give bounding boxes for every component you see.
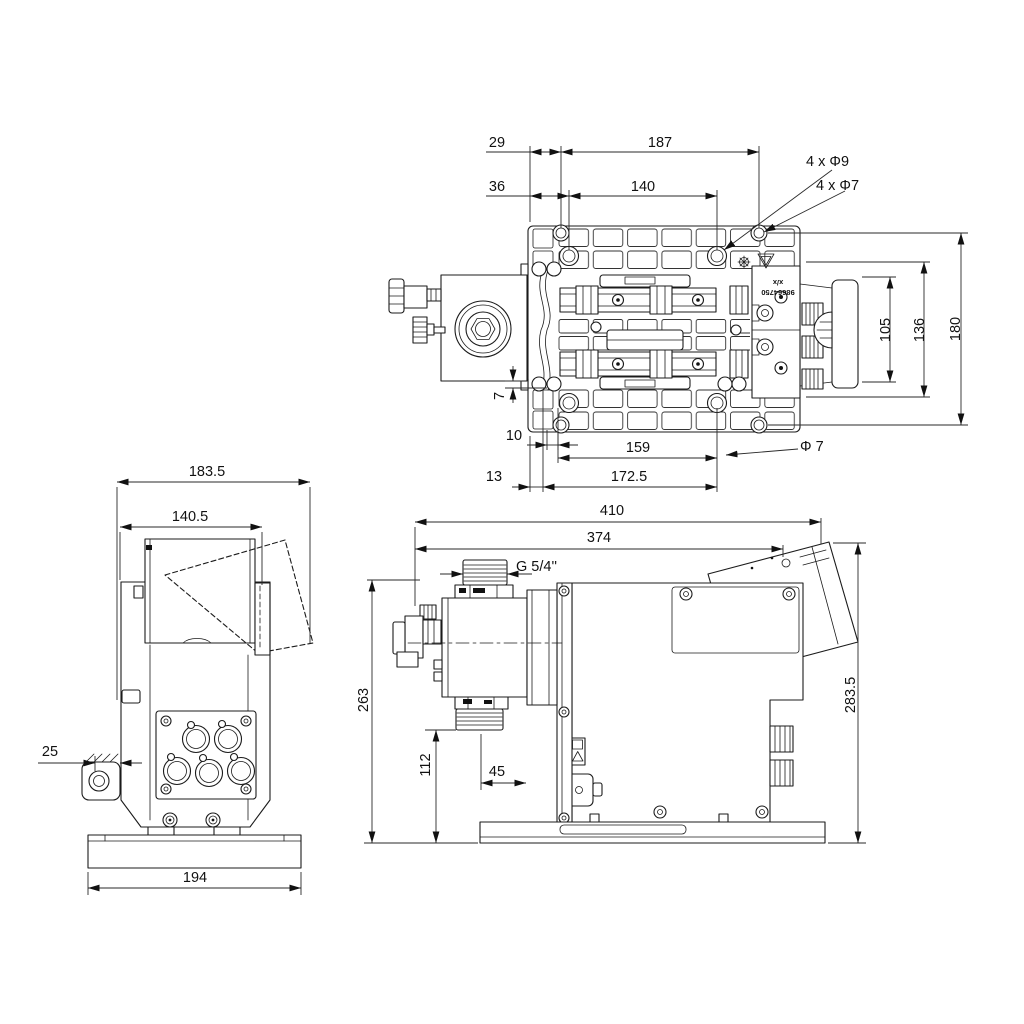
mounting-plate: 98664750 x/x xyxy=(521,225,800,433)
side-view: 410 374 G 5/4'' 263 283.5 112 45 xyxy=(356,503,866,843)
dim-183-5-label: 183.5 xyxy=(189,464,225,480)
dim-283-5-label: 283.5 xyxy=(843,677,859,713)
part-number-text: 98664750 xyxy=(761,288,794,297)
pump-head-top xyxy=(389,275,527,381)
connector-box: 98664750 x/x xyxy=(752,266,800,398)
dim-36-label: 36 xyxy=(489,179,505,195)
thread-size-label: G 5/4'' xyxy=(516,559,557,575)
pump-dimension-drawing: 98664750 x/x xyxy=(0,0,1024,1024)
dim-136-label: 136 xyxy=(912,318,928,342)
dim-10-label: 10 xyxy=(506,428,522,444)
dim-180-label: 180 xyxy=(948,317,964,341)
gear-icon xyxy=(738,256,750,268)
knurled-knob-side xyxy=(770,760,793,786)
discharge-thread-bottom xyxy=(456,709,503,730)
dim-7-label: 7 xyxy=(492,392,508,400)
dim-187-label: 187 xyxy=(648,135,672,151)
connector-plate xyxy=(156,711,256,799)
dim-140-label: 140 xyxy=(631,179,655,195)
knurled-knob-side xyxy=(770,726,793,752)
part-variant-text: x/x xyxy=(772,278,783,287)
dim-140-5-label: 140.5 xyxy=(172,509,208,525)
adjust-knob-top xyxy=(413,317,445,343)
cable-gland-top xyxy=(389,279,441,313)
dim-112-label: 112 xyxy=(418,753,434,776)
knurled-knob xyxy=(802,369,823,389)
dim-45-label: 45 xyxy=(489,764,505,780)
hole-dia-7-label: Φ 7 xyxy=(800,439,824,455)
wall-bracket xyxy=(82,754,120,800)
dim-194-label: 194 xyxy=(183,870,207,886)
technical-drawing-canvas: 98664750 x/x xyxy=(0,0,1024,1024)
dim-410-label: 410 xyxy=(600,503,624,519)
base-plate-end xyxy=(88,835,301,868)
dim-263-label: 263 xyxy=(356,688,372,712)
drive-housing xyxy=(565,583,803,822)
suction-thread-top xyxy=(463,560,507,585)
dim-13-label: 13 xyxy=(486,469,502,485)
end-view: 183.5 140.5 25 194 xyxy=(38,464,313,895)
dim-159-label: 159 xyxy=(626,440,650,456)
dim-172-5-label: 172.5 xyxy=(611,469,647,485)
top-view: 98664750 x/x xyxy=(389,135,968,492)
plate-edge-tab xyxy=(521,264,528,275)
dim-105-label: 105 xyxy=(878,318,894,342)
control-housing-top xyxy=(145,539,255,643)
dim-374-label: 374 xyxy=(587,530,611,546)
cable-gland-side xyxy=(393,605,441,667)
control-panel-edge-top xyxy=(800,280,858,389)
dim-25-label: 25 xyxy=(42,744,58,760)
dim-29-label: 29 xyxy=(489,135,505,151)
holes-phi9-label: 4 x Φ9 xyxy=(806,154,849,170)
holes-phi7-label: 4 x Φ7 xyxy=(816,178,859,194)
pump-head-side xyxy=(393,560,562,730)
